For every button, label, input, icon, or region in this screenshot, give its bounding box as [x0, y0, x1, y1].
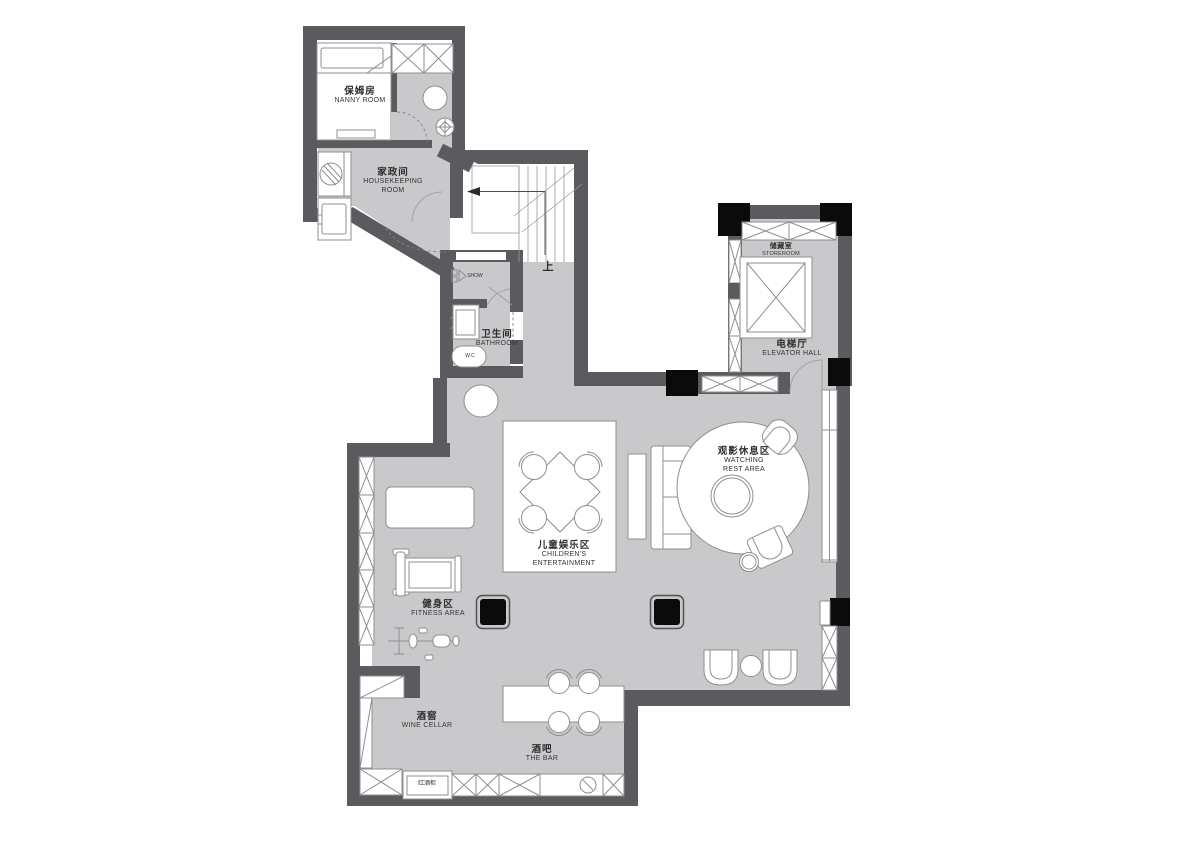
room-label-bathroom: 卫生间 BATHROOM	[476, 329, 518, 349]
floor-plan-drawing	[0, 0, 1200, 848]
room-label-housekeeping: 家政间 HOUSEKEEPING ROOM	[363, 167, 423, 195]
room-label-bar: 酒吧 THE BAR	[526, 744, 558, 764]
room-column	[651, 596, 684, 629]
tv-console-icon	[628, 454, 646, 539]
room-label-elevator-hall: 电梯厅 ELEVATOR HALL	[762, 339, 822, 359]
armchair-icon	[763, 650, 797, 685]
fitness-mat	[386, 487, 474, 528]
room-label-wine-cellar: 酒窖 WINE CELLAR	[402, 711, 453, 731]
floor-plan: 保姆房 NANNY ROOM 家政间 HOUSEKEEPING ROOM 卫生间…	[0, 0, 1200, 848]
armchair-icon	[704, 650, 738, 685]
room-column	[477, 596, 510, 629]
bar-back-cabinets	[452, 774, 624, 796]
room-label-watching-rest: 观影休息区 WATCHING REST AREA	[718, 446, 771, 474]
wc-label: W.C	[465, 353, 474, 359]
stairs-up-label: 上	[543, 261, 554, 274]
washing-machine-icon	[318, 152, 351, 196]
vanity-sink-icon	[450, 305, 479, 339]
laundry-sink-icon	[318, 198, 351, 240]
round-table-icon	[741, 656, 762, 677]
shower-label: SHOW	[467, 273, 483, 279]
room-label-nanny: 保姆房 NANNY ROOM	[334, 86, 385, 106]
plant-icon	[464, 385, 498, 417]
wine-fridge-label: 红酒柜	[418, 781, 436, 788]
round-basin-icon	[423, 86, 447, 110]
elevator-shaft	[740, 257, 812, 338]
floor-drain-icon	[436, 118, 454, 136]
room-label-storeroom: 储藏室 STOREROOM	[762, 243, 800, 258]
room-label-fitness: 健身区 FITNESS AREA	[411, 599, 465, 619]
wardrobe-icon	[392, 44, 453, 73]
side-table-icon	[740, 553, 759, 572]
room-label-children: 儿童娱乐区 CHILDREN'S ENTERTAINMENT	[533, 540, 596, 568]
